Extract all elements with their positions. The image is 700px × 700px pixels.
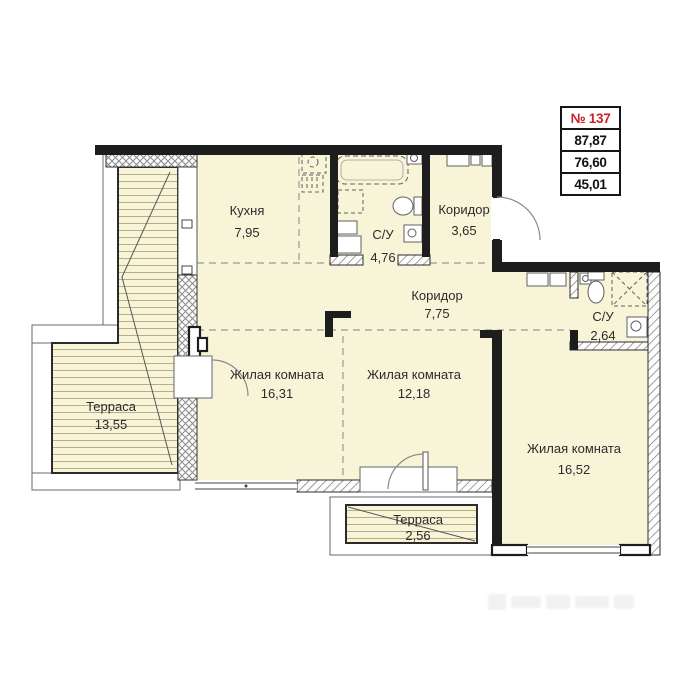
total-area: 87,87 — [562, 128, 619, 150]
wardrobe-icon — [527, 273, 548, 286]
window-mullion — [182, 266, 192, 274]
toilet-icon — [393, 197, 422, 215]
sink-icon — [627, 317, 647, 337]
room-area-living-2: 12,18 — [398, 386, 431, 401]
terrace-large — [32, 152, 180, 490]
room-label-living-1: Жилая комната — [230, 367, 325, 382]
room-area-terrace-1: 13,55 — [95, 417, 128, 432]
room-area-terrace-2: 2,56 — [405, 528, 430, 543]
room-label-corridor-1: Коридор — [438, 202, 489, 217]
toilet-icon — [588, 272, 604, 303]
wardrobe-icon — [550, 273, 566, 286]
room-area-corridor-1: 3,65 — [451, 223, 476, 238]
room-label-living-2: Жилая комната — [367, 367, 462, 382]
room-label-bathroom-1: С/У — [372, 227, 394, 242]
room-label-bathroom-2: С/У — [592, 309, 614, 324]
living-area: 45,01 — [562, 172, 619, 194]
floor-plan-page: Кухня 7,95 С/У 4,76 Коридор 3,65 Коридор… — [0, 0, 700, 700]
entrance-door — [491, 194, 540, 243]
info-table: № 137 87,87 76,60 45,01 — [560, 106, 621, 196]
room-area-bathroom-1: 4,76 — [370, 250, 395, 265]
room-label-kitchen: Кухня — [230, 203, 265, 218]
watermark — [488, 590, 646, 614]
room-label-corridor-2: Коридор — [411, 288, 462, 303]
room-area-bathroom-2: 2,64 — [590, 328, 615, 343]
room-area-corridor-2: 7,75 — [424, 306, 449, 321]
room-area-kitchen: 7,95 — [234, 225, 259, 240]
window-living-room-3 — [527, 545, 620, 555]
room-label-terrace-1: Терраса — [86, 399, 137, 414]
room-area-living-1: 16,31 — [261, 386, 294, 401]
apartment-number: № 137 — [562, 108, 619, 128]
room-area-living-3: 16,52 — [558, 462, 591, 477]
sink-icon — [404, 225, 422, 242]
insulated-wall — [178, 397, 197, 480]
window-living-room-1 — [195, 481, 297, 491]
wardrobe-icon — [471, 155, 480, 165]
room-label-terrace-2: Терраса — [393, 512, 444, 527]
room-label-living-3: Жилая комната — [527, 441, 622, 456]
window-mullion — [182, 220, 192, 228]
area-without-terraces: 76,60 — [562, 150, 619, 172]
